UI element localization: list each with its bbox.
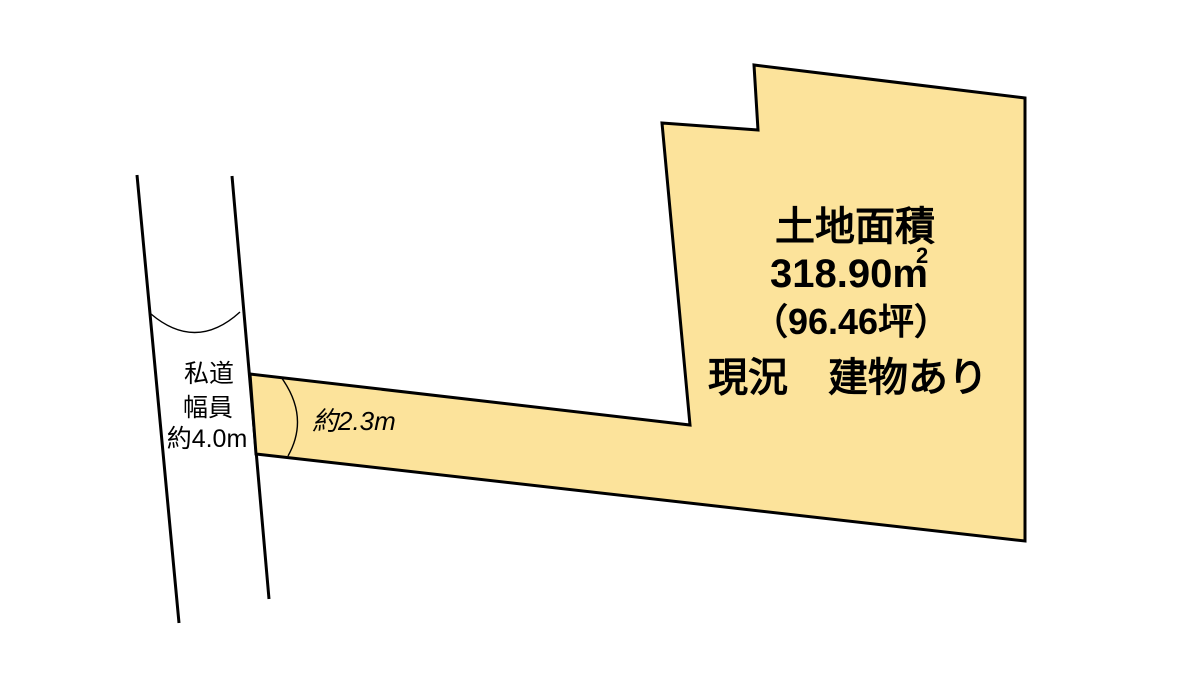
- road-width-value: 約4.0m: [167, 425, 248, 453]
- road: 私道 幅員 約4.0m: [137, 175, 269, 623]
- plot-diagram: 私道 幅員 約4.0m 約2.3m 土地面積 318.90m 2 （96.46坪…: [0, 0, 1200, 675]
- road-left-edge-line: [137, 175, 179, 623]
- road-name-label: 私道: [184, 360, 234, 388]
- parcel-area-superscript: 2: [916, 243, 928, 268]
- parcel-area-tsubo: （96.46坪）: [752, 301, 950, 342]
- parcel: 約2.3m 土地面積 318.90m 2 （96.46坪） 現況 建物あり: [250, 65, 1025, 541]
- parcel-title-label: 土地面積: [775, 205, 935, 249]
- road-width-caption: 幅員: [183, 394, 233, 422]
- parcel-status-label: 現況 建物あり: [708, 356, 988, 400]
- parcel-area-value: 318.90m: [770, 252, 928, 296]
- approach-width-label: 約2.3m: [312, 406, 396, 436]
- road-break-arc: [151, 312, 240, 333]
- plot-diagram-page: 私道 幅員 約4.0m 約2.3m 土地面積 318.90m 2 （96.46坪…: [0, 0, 1200, 675]
